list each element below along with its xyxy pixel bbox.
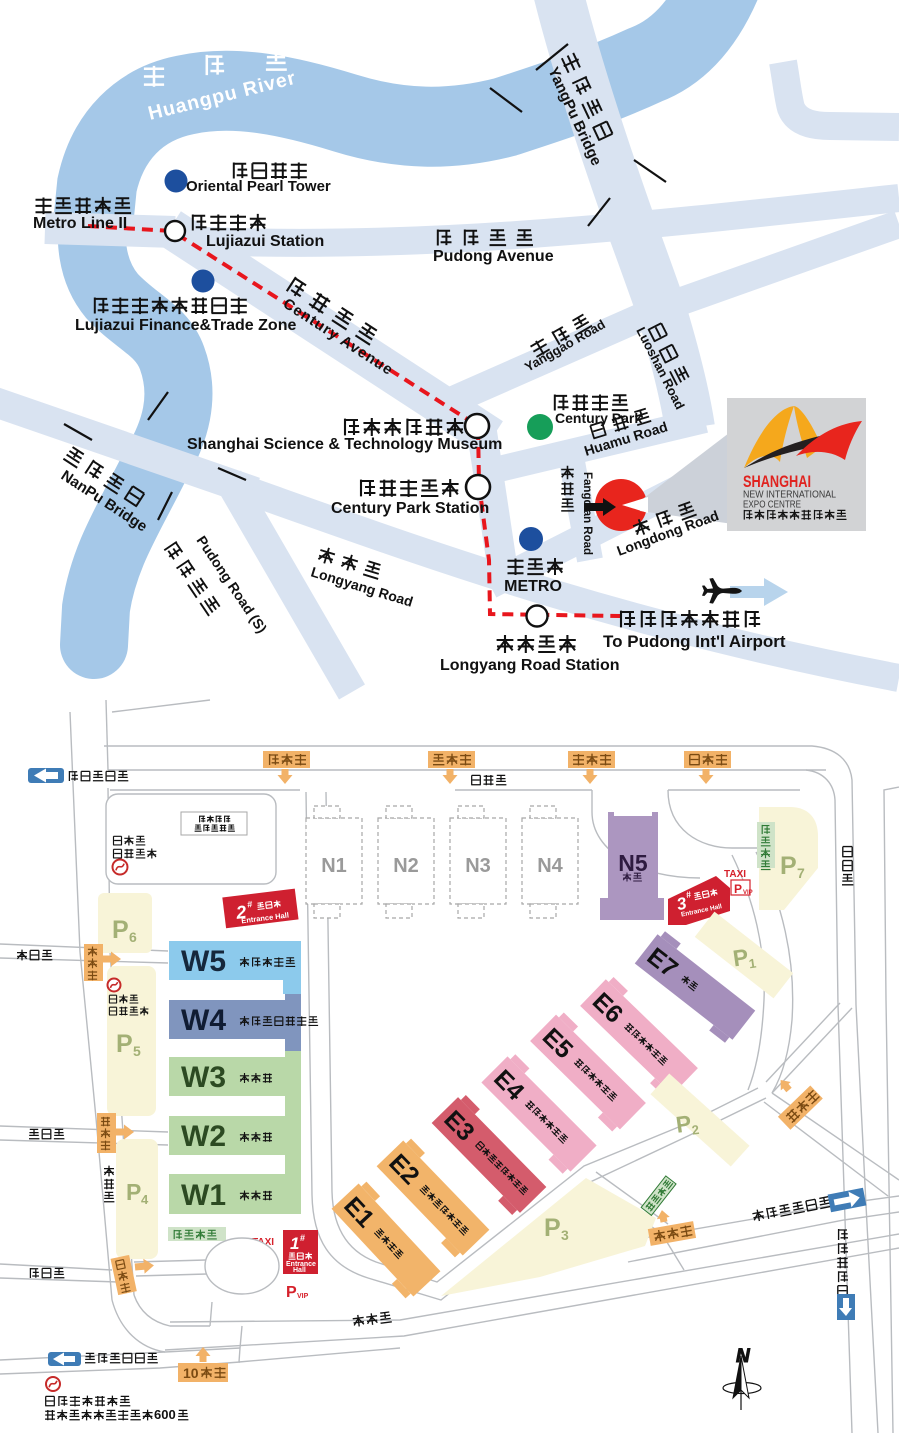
svg-text:P: P — [116, 1030, 133, 1058]
svg-text:10: 10 — [183, 1365, 199, 1381]
svg-text:600: 600 — [154, 1407, 176, 1422]
svg-text:W1: W1 — [181, 1179, 226, 1212]
svg-text:#: # — [300, 1233, 305, 1243]
svg-text:6: 6 — [129, 929, 137, 945]
svg-text:P: P — [286, 1284, 297, 1301]
svg-text:W5: W5 — [181, 945, 226, 978]
svg-text:P: P — [780, 852, 797, 880]
svg-text:1: 1 — [290, 1234, 299, 1253]
svg-text:VIP: VIP — [297, 1293, 309, 1300]
svg-text:Metro Line II: Metro Line II — [33, 215, 127, 232]
svg-text:3: 3 — [561, 1227, 569, 1243]
svg-text:VIP: VIP — [743, 890, 753, 896]
svg-text:Lujiazui Finance&Trade Zone: Lujiazui Finance&Trade Zone — [75, 317, 296, 334]
svg-text:Longyang Road Station: Longyang Road Station — [440, 657, 620, 674]
svg-text:W2: W2 — [181, 1120, 226, 1153]
svg-text:P: P — [544, 1214, 561, 1242]
svg-text:To Pudong Int'l Airport: To Pudong Int'l Airport — [603, 632, 786, 651]
svg-text:4: 4 — [141, 1192, 149, 1207]
svg-text:N2: N2 — [393, 855, 419, 877]
svg-text:N4: N4 — [537, 855, 563, 877]
svg-text:N3: N3 — [465, 855, 491, 877]
svg-text:5: 5 — [133, 1043, 141, 1059]
svg-text:Lujiazui Station: Lujiazui Station — [206, 233, 324, 250]
svg-text:METRO: METRO — [504, 578, 562, 595]
svg-text:Oriental Pearl Tower: Oriental Pearl Tower — [186, 178, 331, 195]
svg-text:P: P — [734, 882, 742, 896]
svg-text:P: P — [112, 916, 129, 944]
svg-text:TAXI: TAXI — [724, 869, 746, 880]
svg-text:W4: W4 — [181, 1004, 226, 1037]
svg-text:Century Park Station: Century Park Station — [331, 500, 489, 517]
svg-text:Fangdian Road: Fangdian Road — [581, 472, 593, 555]
svg-text:N1: N1 — [321, 855, 347, 877]
svg-text:Shanghai Science & Technology: Shanghai Science & Technology Museum — [187, 436, 502, 453]
svg-text:P: P — [126, 1179, 141, 1205]
svg-text:Hall: Hall — [293, 1267, 306, 1274]
svg-text:EXPO CENTRE: EXPO CENTRE — [743, 499, 801, 511]
svg-text:7: 7 — [797, 865, 805, 881]
svg-text:N: N — [736, 1346, 751, 1367]
svg-text:N5: N5 — [618, 850, 648, 876]
svg-text:Pudong Avenue: Pudong Avenue — [433, 248, 554, 265]
svg-text:W3: W3 — [181, 1061, 226, 1094]
